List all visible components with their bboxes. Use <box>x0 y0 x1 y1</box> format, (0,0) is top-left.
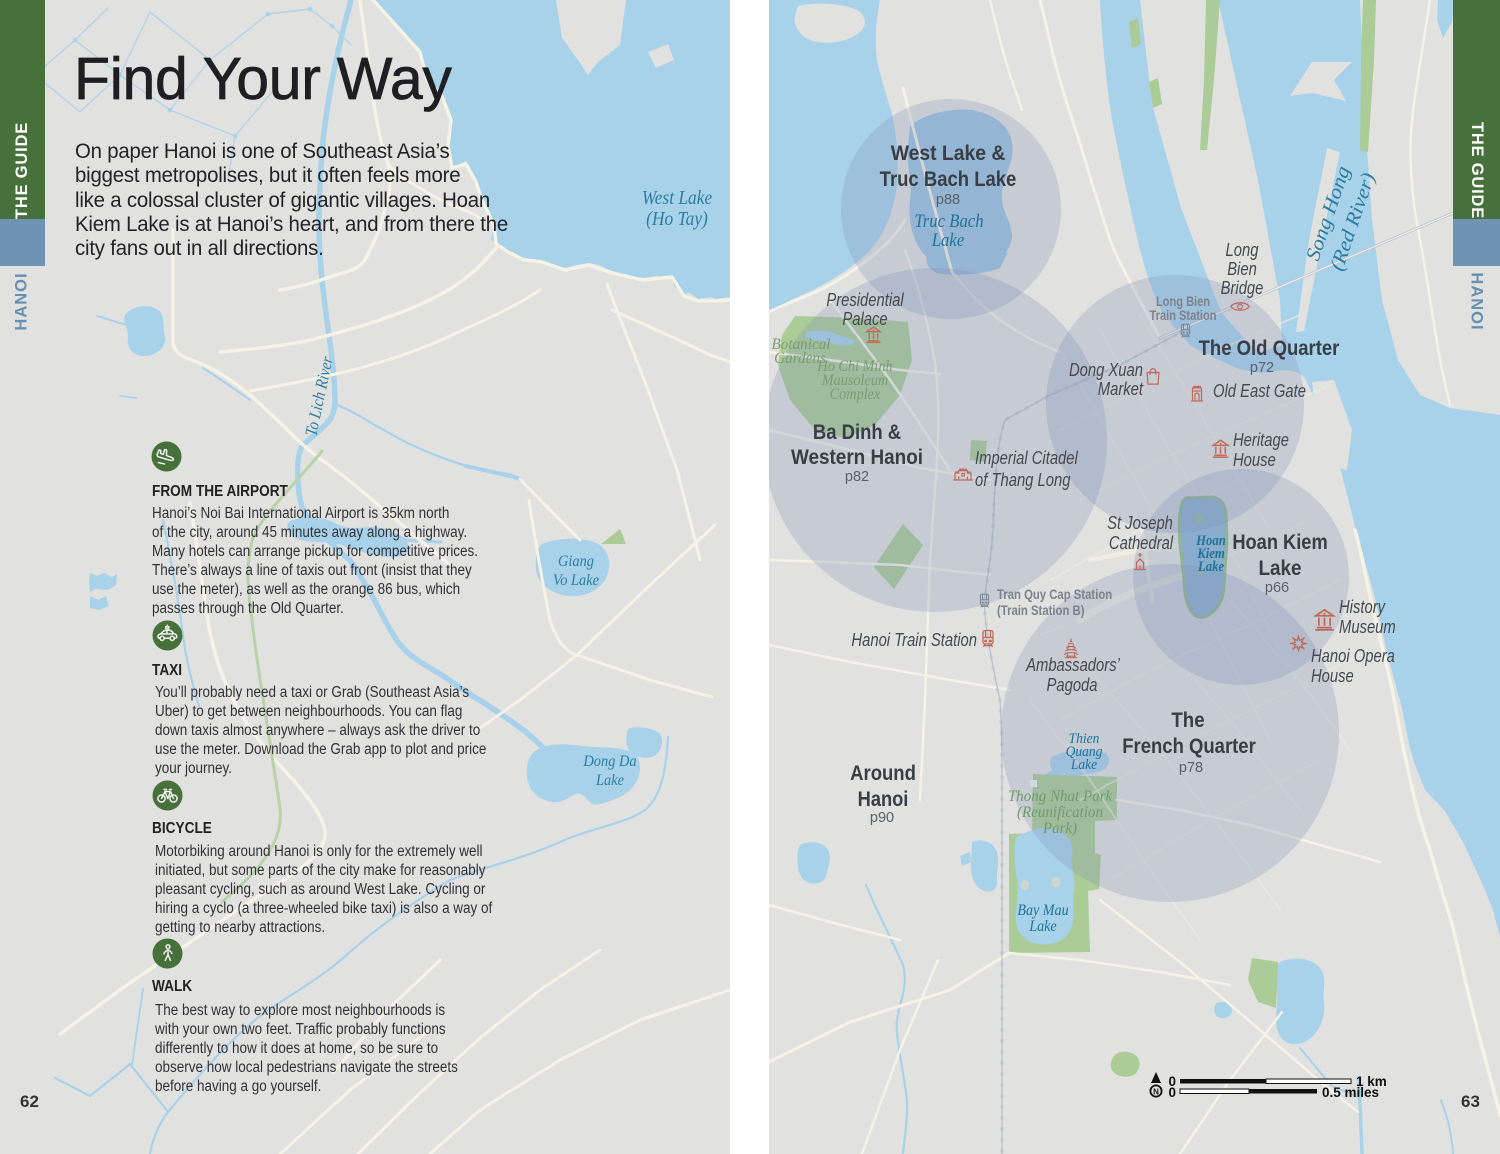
svg-text:Ba Dinh &: Ba Dinh & <box>813 421 901 445</box>
svg-text:Imperial Citadel: Imperial Citadel <box>975 447 1079 468</box>
svg-text:Thong Nhat Park: Thong Nhat Park <box>1008 788 1113 806</box>
svg-text:Cathedral: Cathedral <box>1109 532 1174 553</box>
svg-text:p72: p72 <box>1250 360 1274 376</box>
svg-text:Vo Lake: Vo Lake <box>553 571 599 589</box>
svg-text:St Joseph: St Joseph <box>1107 512 1173 533</box>
svg-text:Hanoi: Hanoi <box>858 788 909 812</box>
svg-text:Hoan Kiem: Hoan Kiem <box>1232 531 1327 555</box>
svg-text:Lake: Lake <box>1258 557 1301 580</box>
svg-text:Lake: Lake <box>1028 918 1057 935</box>
svg-text:House: House <box>1311 665 1354 686</box>
svg-text:p82: p82 <box>845 469 869 485</box>
svg-text:Train Station: Train Station <box>1150 308 1217 323</box>
svg-text:p90: p90 <box>870 810 894 826</box>
svg-text:Hanoi Train Station: Hanoi Train Station <box>851 629 977 650</box>
svg-text:Palace: Palace <box>842 308 887 329</box>
svg-text:0: 0 <box>1168 1085 1176 1100</box>
svg-text:(Train Station B): (Train Station B) <box>997 603 1084 618</box>
svg-text:N: N <box>1153 1088 1159 1097</box>
svg-text:The: The <box>1171 709 1204 732</box>
svg-text:Old East Gate: Old East Gate <box>1213 380 1306 401</box>
svg-text:0.5 miles: 0.5 miles <box>1322 1085 1379 1100</box>
svg-text:Museum: Museum <box>1339 616 1396 637</box>
svg-text:French Quarter: French Quarter <box>1122 735 1256 759</box>
svg-text:(Reunification: (Reunification <box>1017 804 1103 822</box>
svg-text:Park): Park) <box>1042 820 1077 838</box>
svg-text:Pagoda: Pagoda <box>1046 674 1097 695</box>
svg-text:Tran Quy Cap Station: Tran Quy Cap Station <box>997 587 1112 602</box>
svg-text:(Ho Tay): (Ho Tay) <box>646 208 708 230</box>
svg-text:Lake: Lake <box>1070 756 1097 773</box>
svg-text:p88: p88 <box>936 192 960 208</box>
svg-text:Lake: Lake <box>1197 559 1224 575</box>
svg-text:p66: p66 <box>1265 580 1289 596</box>
svg-text:Hanoi Opera: Hanoi Opera <box>1311 645 1395 666</box>
svg-text:Bridge: Bridge <box>1221 277 1264 298</box>
svg-text:Complex: Complex <box>830 387 881 404</box>
svg-text:Bien: Bien <box>1227 258 1257 279</box>
svg-text:Long: Long <box>1226 239 1260 260</box>
svg-text:Giang: Giang <box>558 552 594 570</box>
svg-text:Lake: Lake <box>931 229 964 250</box>
svg-text:Bay Mau: Bay Mau <box>1017 902 1068 919</box>
svg-text:of Thang Long: of Thang Long <box>975 469 1071 490</box>
svg-text:Presidential: Presidential <box>826 289 904 310</box>
svg-text:Western Hanoi: Western Hanoi <box>791 446 923 469</box>
svg-text:Dong Da: Dong Da <box>582 752 637 770</box>
svg-text:House: House <box>1233 449 1276 470</box>
svg-text:Long Bien: Long Bien <box>1156 294 1210 309</box>
svg-text:History: History <box>1339 596 1386 617</box>
svg-text:The Old Quarter: The Old Quarter <box>1199 337 1340 361</box>
svg-text:West Lake: West Lake <box>642 187 712 209</box>
svg-text:West Lake &: West Lake & <box>891 141 1006 165</box>
svg-text:Dong Xuan: Dong Xuan <box>1069 359 1143 380</box>
svg-text:Heritage: Heritage <box>1233 429 1289 450</box>
svg-text:p78: p78 <box>1179 760 1203 776</box>
svg-text:Truc Bach Lake: Truc Bach Lake <box>880 168 1017 192</box>
svg-text:Around: Around <box>850 762 916 786</box>
svg-text:Lake: Lake <box>595 771 624 789</box>
svg-text:Market: Market <box>1098 378 1144 399</box>
